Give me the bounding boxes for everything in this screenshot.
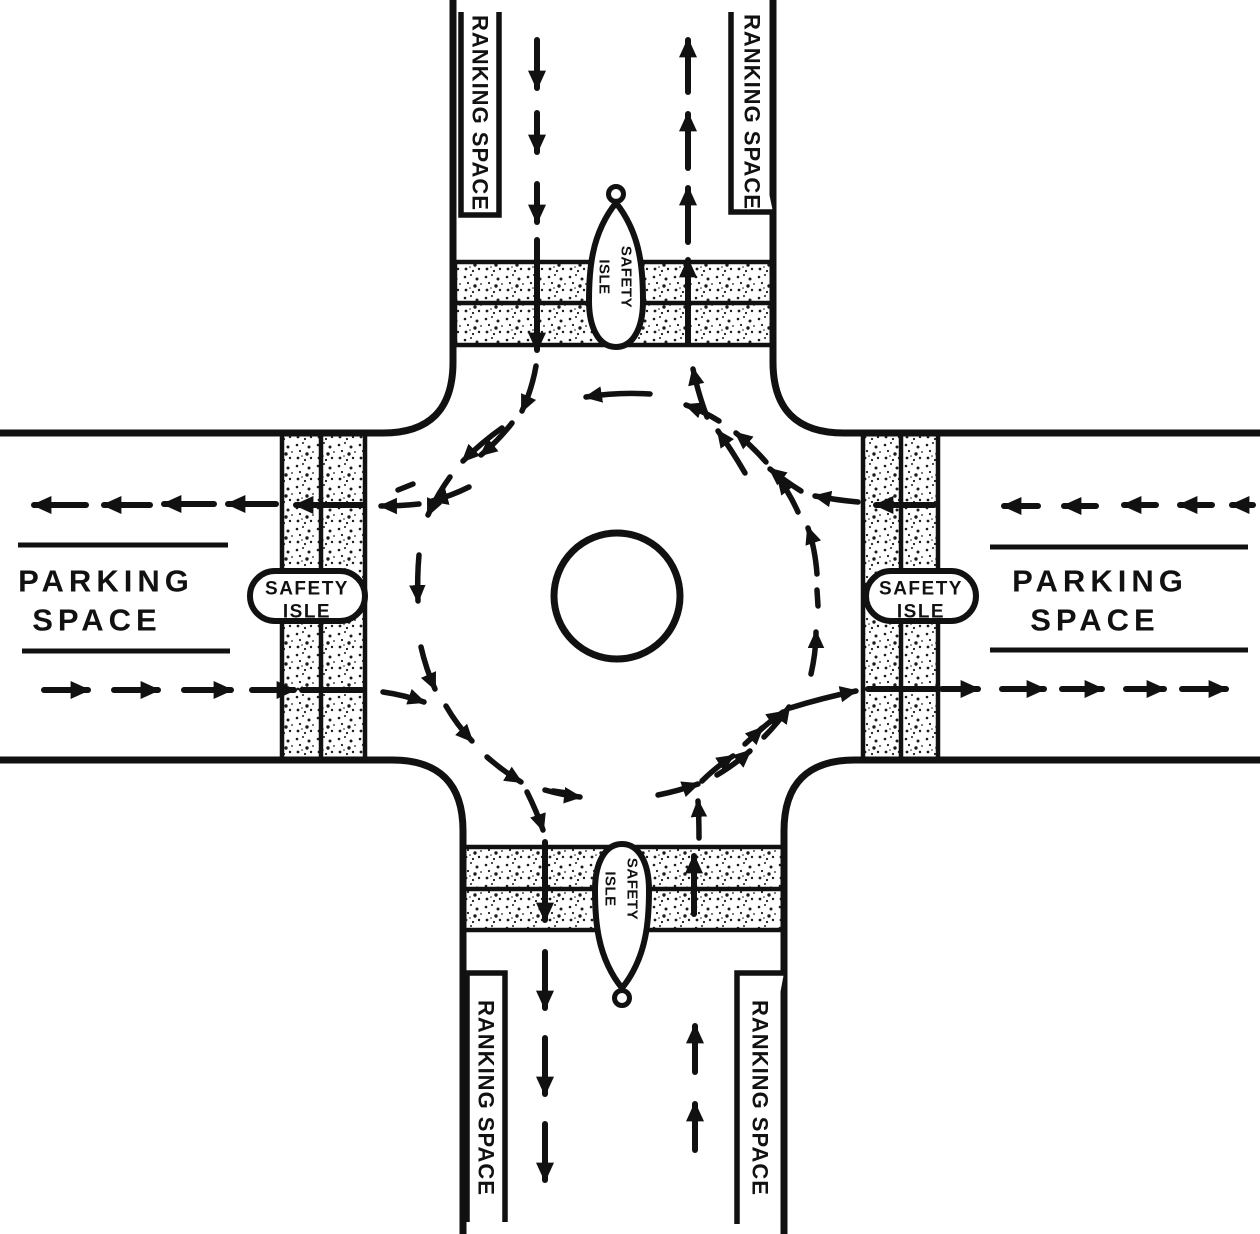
- ring-arrow: [418, 555, 419, 601]
- ring-arrow: [811, 632, 816, 674]
- ranking-space-box-southwest-label: RANKING SPACE: [474, 1000, 499, 1196]
- ranking-space-box-northeast-label: RANKING SPACE: [740, 14, 765, 210]
- parking-space-label-east: PARKING SPACE: [1012, 564, 1188, 638]
- ranking-space-box-northwest-label: RANKING SPACE: [468, 15, 493, 211]
- parking-space-east-line2: SPACE: [1030, 603, 1160, 638]
- safety-isle-south-label-line1: SAFETY: [624, 858, 641, 920]
- south-entry-merge-arrow: [698, 801, 699, 838]
- safety-isle-south-label-line2: ISLE: [602, 871, 619, 906]
- ranking-space-box-southeast: RANKING SPACE: [737, 973, 784, 1224]
- parking-space-west-line2: SPACE: [32, 603, 162, 638]
- road-edge-northwest: [0, 0, 453, 433]
- safety-isle-east-label-line1: SAFETY: [879, 579, 963, 600]
- ring-dash: [553, 791, 567, 793]
- ring-arrow: [586, 393, 650, 397]
- ring-arrow: [487, 757, 521, 782]
- ranking-space-box-southeast-label: RANKING SPACE: [748, 1000, 773, 1196]
- west-entry-merge-arrow: [383, 692, 424, 702]
- parking-space-east-line1: PARKING: [1012, 564, 1188, 599]
- ring-dash: [398, 484, 413, 490]
- safety-isle-east: SAFETY ISLE: [866, 571, 976, 623]
- safety-isle-north-label-line2: ISLE: [596, 259, 613, 294]
- safety-isle-north-label-line1: SAFETY: [618, 246, 635, 308]
- road-edge-southeast: [784, 760, 1260, 1234]
- road-edge-southwest: [0, 760, 463, 1234]
- ring-arrow: [421, 647, 435, 689]
- safety-isle-south-beacon: [615, 991, 630, 1006]
- safety-isle-north-beacon: [609, 187, 624, 202]
- parking-space-west-line1: PARKING: [18, 564, 194, 599]
- south-entry-merge-arrow: [745, 728, 762, 744]
- east-entry-merge-arrow: [815, 496, 858, 502]
- safety-isle-west-label-line2: ISLE: [283, 602, 331, 623]
- ranking-space-box-northwest: RANKING SPACE: [461, 12, 499, 215]
- safety-isle-east-label-line2: ISLE: [897, 602, 945, 623]
- ring-dash: [817, 590, 818, 606]
- road-edge-northeast: [773, 0, 1260, 433]
- safety-isle-west: SAFETY ISLE: [250, 571, 365, 623]
- north-entry-merge-arrow: [522, 366, 536, 411]
- parking-space-label-west: PARKING SPACE: [18, 564, 194, 638]
- roundabout-diagram-page: SAFETY ISLE SAFETY ISLE SAFETY ISLE SAFE…: [0, 0, 1260, 1234]
- safety-isle-west-label-line1: SAFETY: [265, 579, 349, 600]
- merge-diverge-arrows: [381, 366, 858, 838]
- safety-isle-south: SAFETY ISLE: [595, 844, 649, 1006]
- central-island: [554, 533, 680, 659]
- south-exit-diverge-arrow: [527, 792, 543, 830]
- ring-arrow: [736, 433, 766, 462]
- roundabout-traffic-diagram: SAFETY ISLE SAFETY ISLE SAFETY ISLE SAFE…: [0, 0, 1260, 1234]
- ranking-space-box-southwest: RANKING SPACE: [467, 973, 505, 1222]
- ranking-space-box-northeast: RANKING SPACE: [731, 12, 773, 212]
- ring-arrow: [446, 706, 472, 741]
- west-exit-diverge-arrow: [381, 504, 419, 506]
- ring-arrow: [658, 784, 698, 795]
- safety-isle-north: SAFETY ISLE: [589, 187, 643, 348]
- east-exit-diverge-arrow: [790, 691, 856, 708]
- ring-arrow: [808, 528, 817, 574]
